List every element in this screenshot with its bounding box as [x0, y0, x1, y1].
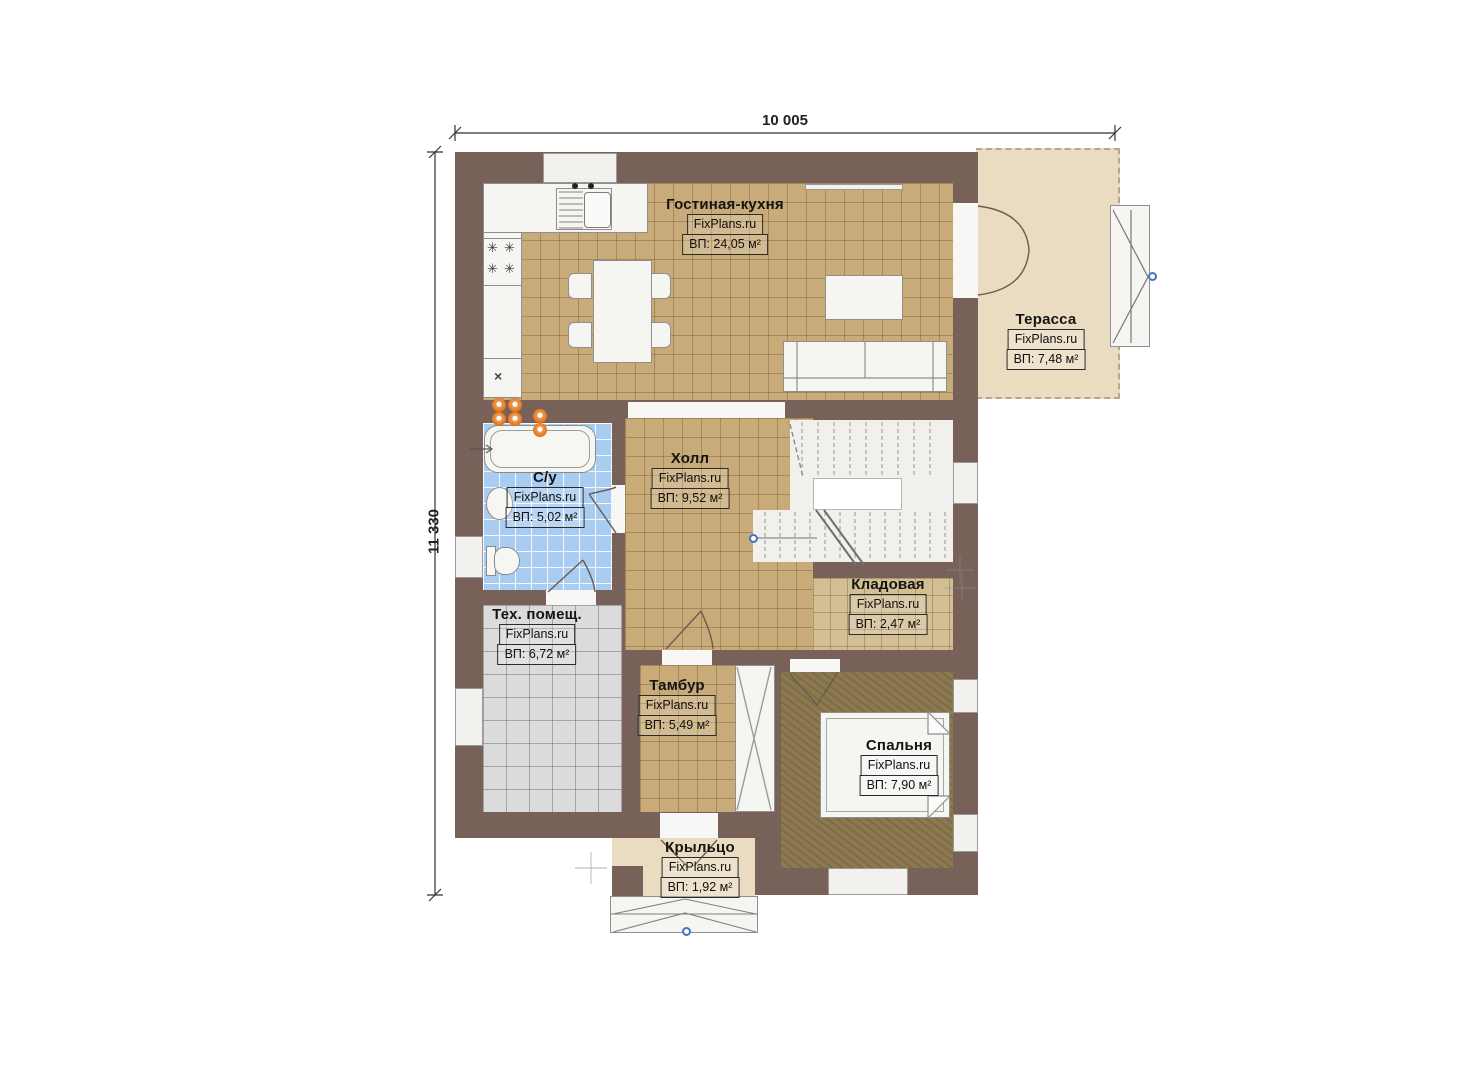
bed-pillow-corner — [928, 796, 950, 818]
room-label-living: Гостиная-кухня FixPlans.ru ВП: 24,05 м² — [666, 196, 784, 255]
french-door-leaf — [978, 250, 1029, 295]
room-label-storage: Кладовая FixPlans.ru ВП: 2,47 м² — [849, 576, 928, 635]
room-name: Терасса — [1007, 311, 1086, 328]
room-area: ВП: 6,72 м² — [498, 644, 577, 665]
bathtub-faucet-icon — [470, 445, 492, 453]
dimension-width-label: 10 005 — [762, 112, 808, 129]
brand-watermark: FixPlans.ru — [639, 695, 716, 716]
room-area: ВП: 7,48 м² — [1007, 349, 1086, 370]
bedroom-door-leaf — [789, 672, 838, 705]
brand-watermark: FixPlans.ru — [687, 214, 764, 235]
room-name: Гостиная-кухня — [666, 196, 784, 213]
brand-watermark: FixPlans.ru — [652, 468, 729, 489]
brand-watermark: FixPlans.ru — [662, 857, 739, 878]
room-label-porch: Крыльцо FixPlans.ru ВП: 1,92 м² — [661, 839, 740, 898]
room-label-hall: Холл FixPlans.ru ВП: 9,52 м² — [651, 450, 730, 509]
room-area: ВП: 24,05 м² — [682, 234, 768, 255]
bed-pillow-corner — [928, 712, 950, 734]
brand-watermark: FixPlans.ru — [507, 487, 584, 508]
room-label-terrace: Терасса FixPlans.ru ВП: 7,48 м² — [1007, 311, 1086, 370]
room-area: ВП: 9,52 м² — [651, 488, 730, 509]
room-name: Спальня — [860, 737, 939, 754]
stair-treads-upper — [802, 422, 930, 477]
room-label-tech: Тех. помещ. FixPlans.ru ВП: 6,72 м² — [492, 606, 582, 665]
room-name: Холл — [651, 450, 730, 467]
room-label-vestibule: Тамбур FixPlans.ru ВП: 5,49 м² — [638, 677, 717, 736]
room-label-bedroom: Спальня FixPlans.ru ВП: 7,90 м² — [860, 737, 939, 796]
room-name: Кладовая — [849, 576, 928, 593]
room-area: ВП: 2,47 м² — [849, 614, 928, 635]
floor-plan-canvas: ✳ ✳ ✳ ✳ × — [0, 0, 1474, 1080]
vestibule-door-leaf — [666, 611, 713, 649]
brand-watermark: FixPlans.ru — [861, 755, 938, 776]
node-handle — [749, 534, 758, 543]
brand-watermark: FixPlans.ru — [1008, 329, 1085, 350]
plan-linework — [0, 0, 1474, 1080]
node-handle — [682, 927, 691, 936]
bathroom-door-leaf — [589, 487, 616, 533]
french-door-leaf — [978, 206, 1029, 250]
room-area: ВП: 5,49 м² — [638, 715, 717, 736]
dimension-height-label: 11 330 — [426, 502, 443, 562]
node-handle — [1148, 272, 1157, 281]
room-name: Крыльцо — [661, 839, 740, 856]
room-area: ВП: 5,02 м² — [506, 507, 585, 528]
stair-cut-dashed — [790, 424, 803, 477]
closet-x-icon — [737, 667, 771, 810]
room-name: Тамбур — [638, 677, 717, 694]
room-name: С/у — [506, 469, 585, 486]
brand-watermark: FixPlans.ru — [499, 624, 576, 645]
room-label-bathroom: С/у FixPlans.ru ВП: 5,02 м² — [506, 469, 585, 528]
sofa-lines — [783, 341, 947, 392]
room-name: Тех. помещ. — [492, 606, 582, 623]
brand-watermark: FixPlans.ru — [850, 594, 927, 615]
room-area: ВП: 7,90 м² — [860, 775, 939, 796]
bathroom-tech-door-leaf — [548, 560, 595, 592]
room-area: ВП: 1,92 м² — [661, 877, 740, 898]
